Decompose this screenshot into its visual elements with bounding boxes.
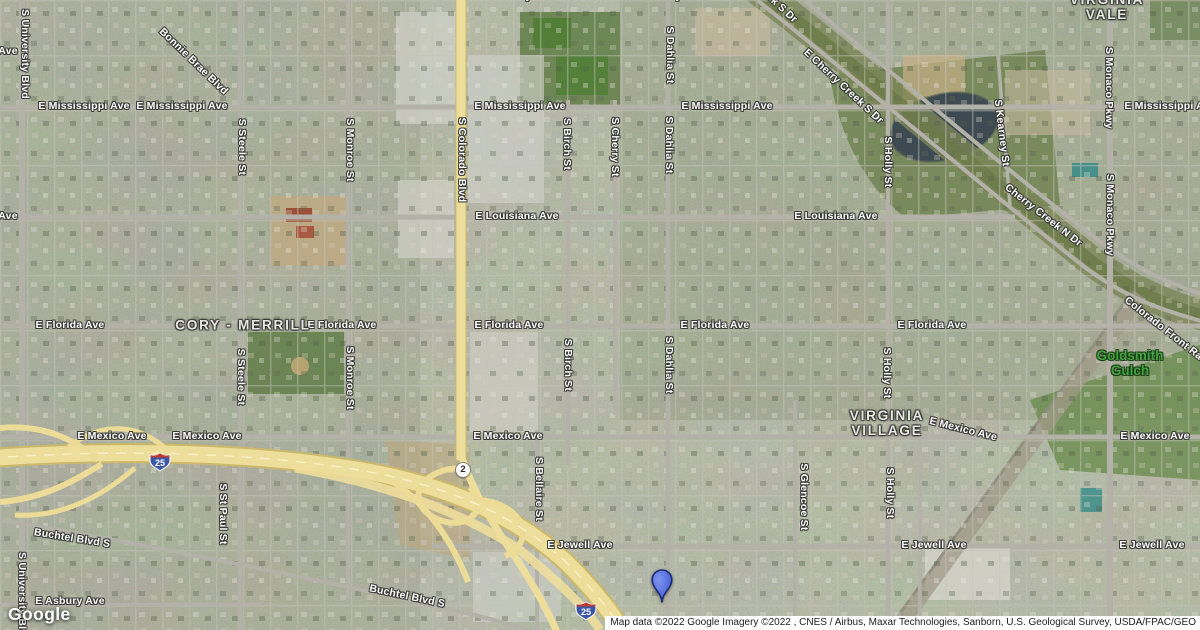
google-logo[interactable]: Google bbox=[8, 604, 71, 625]
map-pin-icon[interactable] bbox=[650, 568, 674, 604]
satellite-imagery bbox=[0, 0, 1200, 630]
map-attribution: Map data ©2022 Google Imagery ©2022 , CN… bbox=[605, 616, 1200, 630]
map-canvas[interactable]: E Mississippi AveE Mississippi AveE Miss… bbox=[0, 0, 1200, 630]
